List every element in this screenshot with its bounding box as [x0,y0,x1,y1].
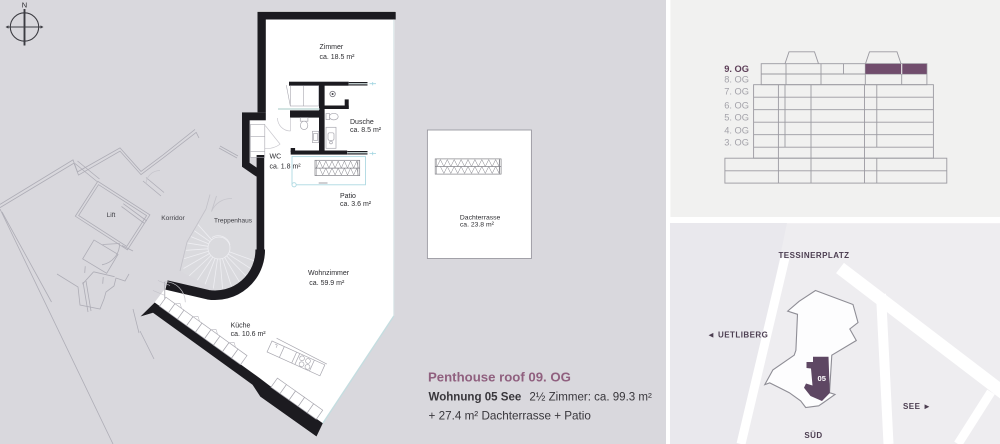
svg-text:ca. 8.5 m²: ca. 8.5 m² [350,127,382,134]
svg-text:ca. 3.6 m²: ca. 3.6 m² [340,201,372,208]
svg-text:9. OG: 9. OG [724,64,749,74]
svg-text:05: 05 [818,374,827,383]
svg-text:6. OG: 6. OG [724,100,749,110]
svg-text:3. OG: 3. OG [724,137,749,147]
svg-text:ca. 10.6 m²: ca. 10.6 m² [231,331,267,338]
svg-text:ca. 23.8 m²: ca. 23.8 m² [460,222,495,229]
svg-text:N: N [22,1,27,10]
svg-text:ca. 1.8 m²: ca. 1.8 m² [270,164,302,171]
svg-text:Dachterrasse: Dachterrasse [460,214,501,221]
svg-text:4. OG: 4. OG [724,125,749,135]
svg-text:Dusche: Dusche [350,119,374,126]
svg-text:Wohnung 05 See2½ Zimmer: ca. 9: Wohnung 05 See2½ Zimmer: ca. 99.3 m² [429,392,653,404]
svg-text:7. OG: 7. OG [724,86,749,96]
svg-text:Korridor: Korridor [161,215,185,222]
svg-text:Treppenhaus: Treppenhaus [214,218,253,225]
svg-text:5. OG: 5. OG [724,113,749,123]
svg-text:SEE ►: SEE ► [903,402,931,411]
svg-text:Küche: Küche [231,323,251,330]
svg-text:Patio: Patio [340,193,356,200]
svg-text:◄ UETLIBERG: ◄ UETLIBERG [707,331,768,340]
svg-text:WC: WC [270,154,282,161]
svg-text:ca. 18.5 m²: ca. 18.5 m² [320,54,356,61]
svg-text:Penthouse roof 09. OG: Penthouse roof 09. OG [428,370,571,385]
svg-text:Lift: Lift [107,212,116,219]
svg-text:ca. 59.9 m²: ca. 59.9 m² [309,280,345,287]
svg-text:+ 27.4 m² Dachterrasse + Patio: + 27.4 m² Dachterrasse + Patio [429,409,592,422]
svg-text:Zimmer: Zimmer [320,44,344,51]
svg-text:SÜD: SÜD [804,431,822,440]
svg-text:8. OG: 8. OG [724,75,749,85]
svg-text:TESSINERPLATZ: TESSINERPLATZ [778,251,849,260]
svg-text:Wohnzimmer: Wohnzimmer [308,270,350,277]
